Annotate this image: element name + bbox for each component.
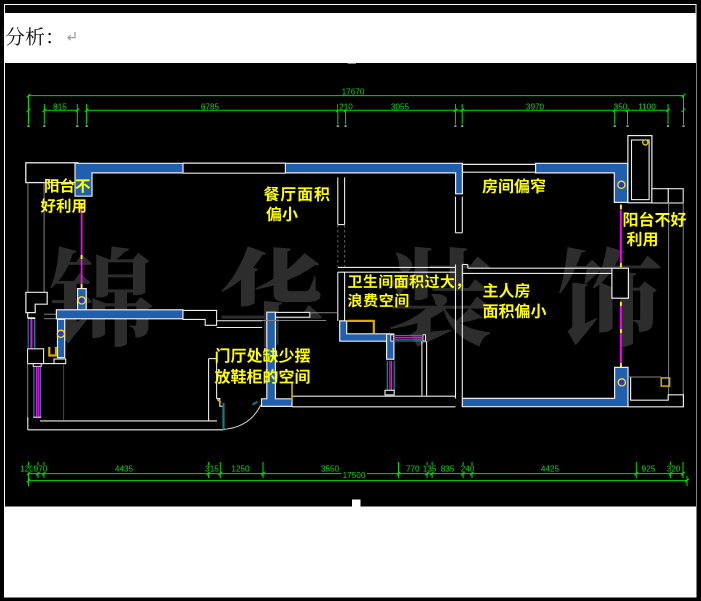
svg-text:210: 210 <box>339 102 353 111</box>
svg-text:970: 970 <box>34 465 48 474</box>
svg-text:120: 120 <box>20 465 34 474</box>
svg-text:1250: 1250 <box>231 465 250 474</box>
svg-text:4425: 4425 <box>541 465 560 474</box>
svg-text:17670: 17670 <box>342 88 365 97</box>
svg-text:4435: 4435 <box>115 465 134 474</box>
svg-text:3550: 3550 <box>321 465 340 474</box>
svg-text:240: 240 <box>461 465 475 474</box>
svg-text:835: 835 <box>441 465 455 474</box>
svg-text:1100: 1100 <box>638 102 656 111</box>
svg-text:6785: 6785 <box>201 102 220 111</box>
svg-text:3055: 3055 <box>391 102 410 111</box>
svg-text:17500: 17500 <box>343 471 366 480</box>
svg-text:350: 350 <box>614 102 628 111</box>
svg-text:320: 320 <box>667 465 681 474</box>
svg-text:815: 815 <box>53 102 67 111</box>
svg-text:770: 770 <box>406 465 420 474</box>
svg-text:925: 925 <box>642 465 656 474</box>
svg-text:135: 135 <box>423 465 437 474</box>
svg-text:3970: 3970 <box>526 102 545 111</box>
svg-text:315: 315 <box>205 465 219 474</box>
